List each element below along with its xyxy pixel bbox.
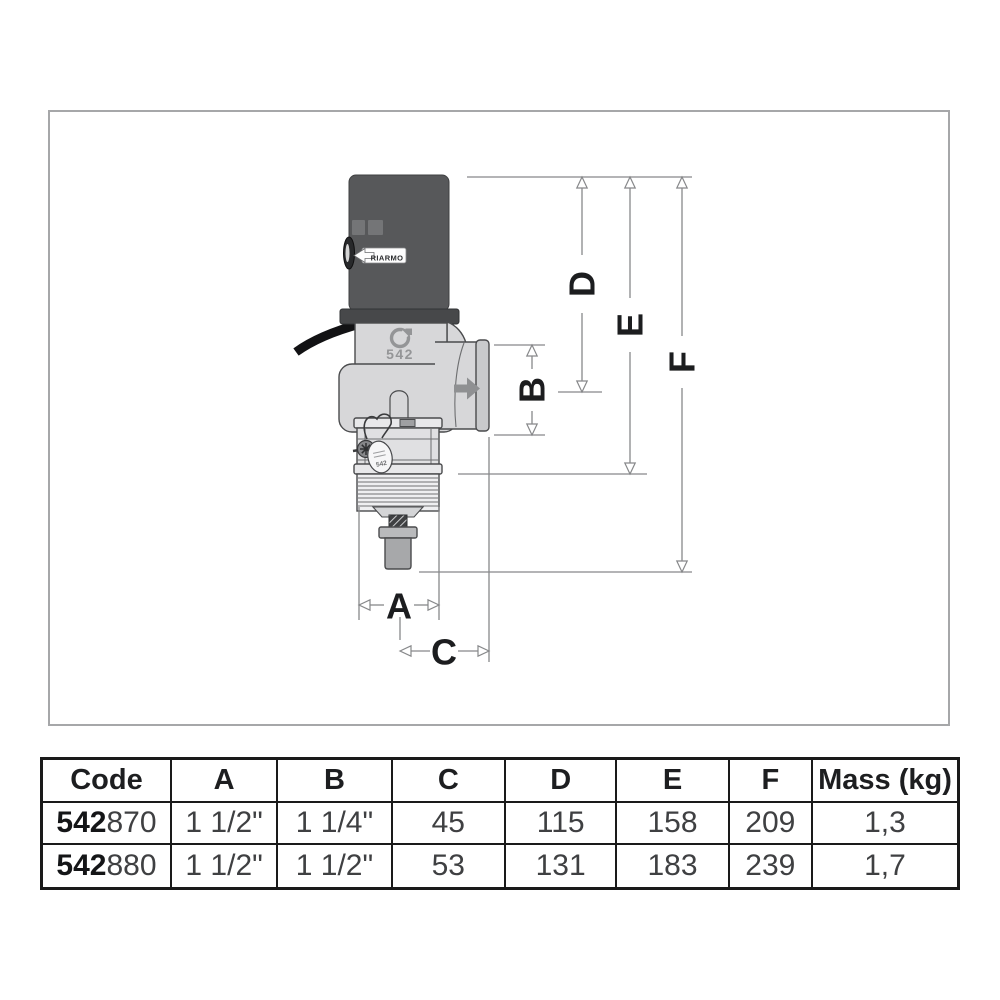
col-header-d: D bbox=[505, 759, 616, 802]
outlet-flange bbox=[476, 340, 489, 431]
dim-label-f: F bbox=[662, 351, 703, 373]
valve-body: 542 bbox=[339, 322, 489, 432]
datasheet-page: RIARMO bbox=[0, 0, 1000, 1000]
code-suffix: 880 bbox=[106, 849, 156, 882]
code-cell: 542880 bbox=[42, 844, 171, 889]
dimension-c: C bbox=[400, 632, 489, 673]
value-f: 239 bbox=[729, 844, 812, 889]
cap-bottom-flange bbox=[354, 464, 442, 474]
value-c: 53 bbox=[392, 844, 505, 889]
col-header-f: F bbox=[729, 759, 812, 802]
dim-label-a: A bbox=[386, 586, 412, 627]
value-mass: 1,7 bbox=[812, 844, 959, 889]
code-prefix: 542 bbox=[56, 849, 106, 882]
value-mass: 1,3 bbox=[812, 802, 959, 844]
value-e: 183 bbox=[616, 844, 728, 889]
value-b: 1 1/2" bbox=[277, 844, 391, 889]
dimension-f: F bbox=[662, 177, 703, 572]
dim-label-c: C bbox=[431, 632, 457, 673]
threaded-connection bbox=[357, 474, 439, 569]
dimension-b: B bbox=[512, 345, 553, 435]
power-cable bbox=[296, 324, 360, 352]
value-b: 1 1/4" bbox=[277, 802, 391, 844]
reset-label: RIARMO bbox=[371, 253, 404, 262]
value-f: 209 bbox=[729, 802, 812, 844]
value-a: 1 1/2" bbox=[171, 844, 277, 889]
code-cell: 542870 bbox=[42, 802, 171, 844]
col-header-a: A bbox=[171, 759, 277, 802]
seal-anchor-tab bbox=[400, 420, 415, 427]
table-row: 542880 1 1/2" 1 1/2" 53 131 183 239 1,7 bbox=[42, 844, 959, 889]
value-a: 1 1/2" bbox=[171, 802, 277, 844]
actuator-housing: RIARMO bbox=[340, 175, 459, 324]
dimension-a: A bbox=[359, 586, 439, 627]
sensor-probe bbox=[385, 538, 411, 569]
dim-label-b: B bbox=[512, 377, 553, 403]
spec-table-header-row: Code A B C D E F Mass (kg) bbox=[42, 759, 959, 802]
col-header-code: Code bbox=[42, 759, 171, 802]
value-d: 115 bbox=[505, 802, 616, 844]
dim-label-d: D bbox=[562, 271, 603, 297]
dimension-d: D bbox=[562, 177, 603, 392]
actuator-flange bbox=[340, 309, 459, 324]
probe-nut bbox=[379, 527, 417, 538]
value-e: 158 bbox=[616, 802, 728, 844]
col-header-c: C bbox=[392, 759, 505, 802]
technical-drawing-frame: RIARMO bbox=[48, 110, 950, 726]
table-row: 542870 1 1/2" 1 1/4" 45 115 158 209 1,3 bbox=[42, 802, 959, 844]
value-d: 131 bbox=[505, 844, 616, 889]
spec-table: Code A B C D E F Mass (kg) 542870 1 1/2"… bbox=[40, 757, 960, 890]
valve-device: RIARMO bbox=[296, 175, 489, 569]
actuator-vent bbox=[352, 220, 365, 235]
value-c: 45 bbox=[392, 802, 505, 844]
code-suffix: 870 bbox=[106, 806, 156, 839]
model-number: 542 bbox=[386, 346, 414, 362]
dim-label-e: E bbox=[610, 313, 651, 337]
col-header-b: B bbox=[277, 759, 391, 802]
sealed-cap-section: 542 bbox=[353, 414, 442, 475]
valve-technical-drawing: RIARMO bbox=[50, 112, 948, 724]
code-prefix: 542 bbox=[56, 806, 106, 839]
dimension-e: E bbox=[610, 177, 651, 474]
col-header-mass: Mass (kg) bbox=[812, 759, 959, 802]
col-header-e: E bbox=[616, 759, 728, 802]
actuator-vent bbox=[368, 220, 383, 235]
